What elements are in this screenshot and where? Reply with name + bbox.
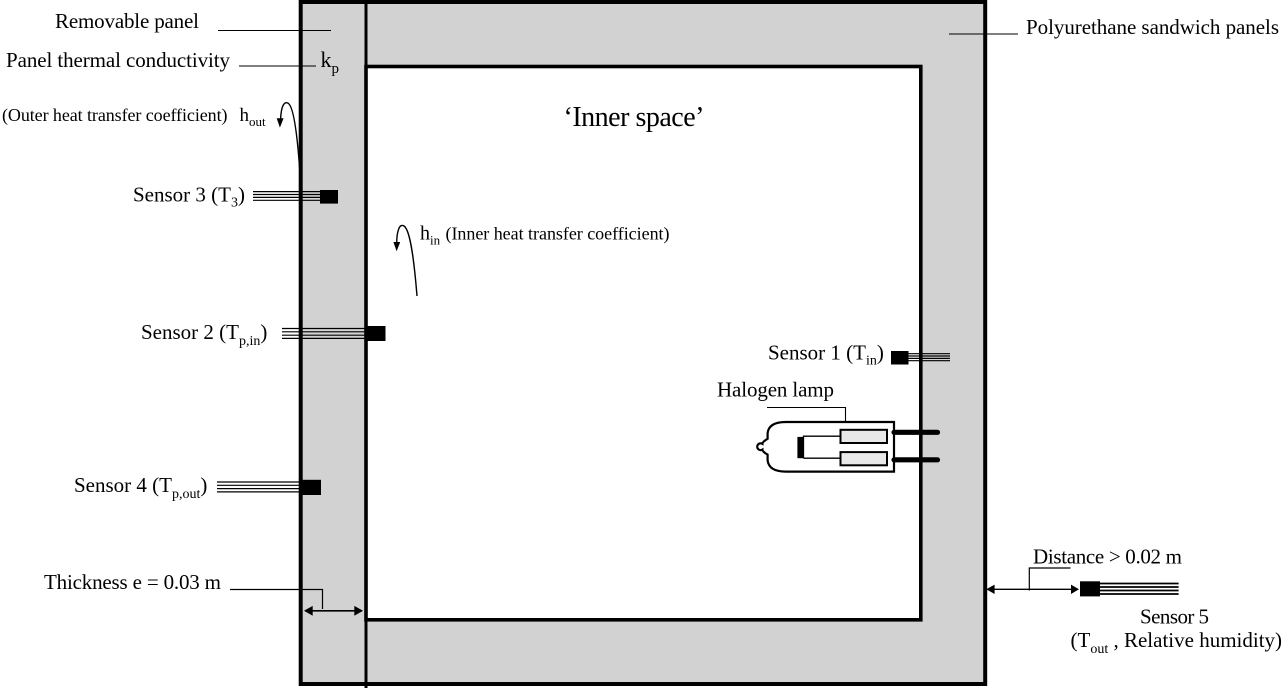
svg-text:Thickness e = 0.03 m: Thickness e = 0.03 m: [44, 570, 221, 594]
svg-text:Polyurethane sandwich panels: Polyurethane sandwich panels: [1026, 15, 1279, 39]
svg-text:(Tout , Relative humidity): (Tout , Relative humidity): [1071, 628, 1281, 657]
svg-text:Halogen lamp: Halogen lamp: [717, 377, 834, 401]
svg-text:‘Inner space’: ‘Inner space’: [564, 102, 705, 133]
svg-text:Panel thermal conductivity: Panel thermal conductivity: [6, 48, 231, 72]
svg-text:hout: hout: [240, 105, 267, 129]
svg-text:Distance > 0.02 m: Distance > 0.02 m: [1033, 545, 1182, 569]
svg-text:(Outer heat transfer coefficie: (Outer heat transfer coefficient): [2, 105, 228, 126]
svg-text:Sensor 4 (Tp,out): Sensor 4 (Tp,out): [74, 473, 207, 502]
svg-text:Sensor 5: Sensor 5: [1140, 604, 1209, 628]
svg-text:Sensor 2 (Tp,in): Sensor 2 (Tp,in): [141, 320, 267, 349]
svg-text:(Inner heat transfer coefficie: (Inner heat transfer coefficient): [446, 224, 670, 245]
svg-text:Sensor 3 (T3): Sensor 3 (T3): [133, 183, 245, 211]
svg-text:Removable panel: Removable panel: [55, 9, 199, 33]
